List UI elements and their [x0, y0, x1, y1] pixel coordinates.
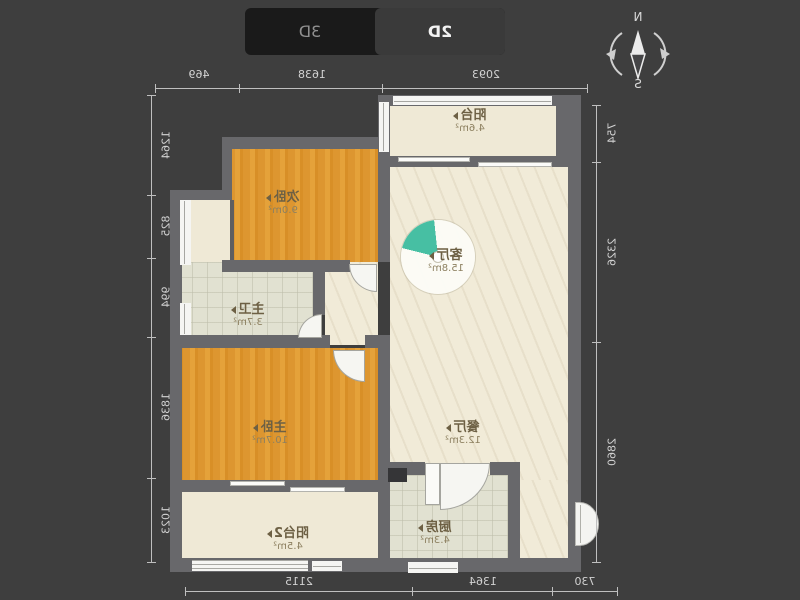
view-mode-toggle: 2D 3D [245, 8, 505, 55]
outer-wall-left [568, 95, 581, 570]
dim-left-1: 754 [606, 123, 619, 144]
bedroom2-alcove-wall [230, 200, 234, 262]
room-area: 10.7m² [232, 436, 308, 447]
balcony2-slider-pane-b [290, 487, 345, 492]
balcony-slider-pane-b [478, 162, 552, 167]
mirrored-floorplan-stage: 2D 3D N S [0, 0, 800, 600]
room-name: 阳台2 [267, 526, 309, 541]
dim-left-2: 2326 [606, 238, 619, 266]
room-name: 阳台 [454, 108, 487, 123]
compass-icon[interactable]: N S [598, 4, 678, 90]
dim-bottom-3: 2115 [285, 575, 313, 588]
room-arrow-icon [454, 112, 459, 120]
room-arrow-icon [267, 530, 272, 538]
balcony2-window [192, 560, 308, 571]
compass-north-label: N [634, 10, 643, 24]
balcony2-slider-pane-a [230, 481, 285, 486]
view-2d-button[interactable]: 2D [375, 8, 505, 55]
balcony-side-window [379, 102, 389, 152]
room-name: 客厅 [430, 248, 463, 263]
room-name: 主卧 [254, 420, 287, 435]
dim-top-3: 469 [189, 68, 210, 81]
room-arrow-icon [267, 194, 272, 202]
room-arrow-icon [447, 424, 452, 432]
room-arrow-icon [419, 524, 424, 532]
dim-line-left [596, 105, 597, 562]
bedroom2-top-wall [222, 137, 383, 149]
dim-bottom-1: 730 [575, 575, 596, 588]
balcony-slider-pane-a [398, 157, 470, 162]
dim-right-1: 1264 [160, 131, 173, 159]
room-name: 餐厅 [447, 420, 480, 435]
dim-right-5: 1023 [160, 506, 173, 534]
view-3d-button[interactable]: 3D [245, 8, 375, 55]
kitchen-side-wall [508, 462, 520, 562]
bedroom2-bottom-wall [222, 260, 350, 272]
dim-right-2: 825 [160, 216, 173, 237]
room-label-kitchen[interactable]: 厨房 4.3m² [397, 518, 473, 546]
master-bath-window [180, 303, 191, 335]
room-arrow-icon [254, 424, 259, 432]
room-area: 15.8m² [408, 264, 484, 275]
room-area: 4.3m² [397, 536, 473, 547]
room-arrow-icon [232, 306, 237, 314]
dim-right-4: 1836 [160, 393, 173, 421]
room-area: 4.6m² [432, 124, 508, 135]
room-label-dining-room[interactable]: 餐厅 12.3m² [425, 418, 501, 446]
room-label-balcony[interactable]: 阳台 4.6m² [432, 106, 508, 134]
dim-right-3: 994 [160, 287, 173, 308]
kitchen-door-leaf [425, 463, 440, 505]
balcony2-window-small [312, 561, 342, 571]
room-area: 3.7m² [210, 318, 286, 329]
room-area: 9.0m² [245, 206, 321, 217]
dim-bottom-2: 1364 [469, 575, 497, 588]
dim-line-right [151, 95, 152, 562]
room-name: 主卫 [232, 302, 265, 317]
room-area: 12.3m² [425, 436, 501, 447]
dim-line-top [155, 88, 588, 89]
room-label-balcony2[interactable]: 阳台2 4.5m² [250, 524, 326, 552]
room-label-bedroom2[interactable]: 次卧 9.0m² [245, 188, 321, 216]
room-label-master-bedroom[interactable]: 主卧 10.7m² [232, 418, 308, 446]
alcove-window [180, 200, 191, 265]
master-bath-left-wall [313, 262, 325, 315]
room-name: 次卧 [267, 190, 300, 205]
balcony-window [393, 96, 552, 105]
bath-alcove-floor [191, 200, 230, 262]
dim-top-2: 1638 [298, 68, 326, 81]
dim-line-bottom [185, 591, 618, 592]
dim-top-1: 2093 [472, 68, 500, 81]
room-label-master-bath[interactable]: 主卫 3.7m² [210, 300, 286, 328]
floorplan-viewer: 2D 3D N S [0, 0, 800, 600]
kitchen-flue-box [388, 468, 407, 482]
dining-strip-floor [520, 480, 568, 560]
room-arrow-icon [430, 252, 435, 260]
room-name: 厨房 [419, 520, 452, 535]
dim-left-3: 2860 [606, 438, 619, 466]
room-label-living-room[interactable]: 客厅 15.8m² [408, 246, 484, 274]
bedroom-living-divider-wall [378, 345, 390, 570]
room-area: 4.5m² [250, 542, 326, 553]
kitchen-window [408, 562, 458, 573]
